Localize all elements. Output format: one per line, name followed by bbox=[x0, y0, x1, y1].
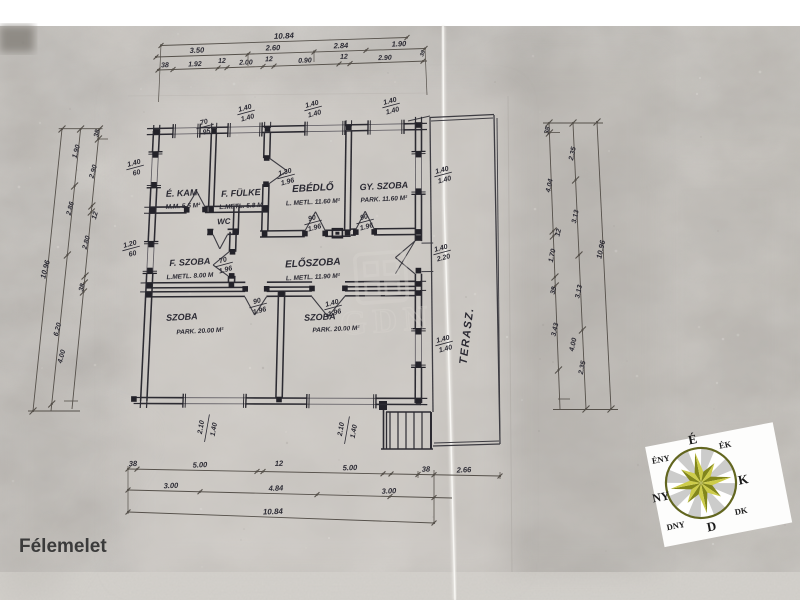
svg-text:SZOBA: SZOBA bbox=[166, 311, 198, 323]
svg-text:3.50: 3.50 bbox=[189, 45, 205, 55]
svg-text:2.90: 2.90 bbox=[377, 55, 392, 63]
svg-text:5.00: 5.00 bbox=[192, 460, 208, 470]
svg-text:É. KAM.: É. KAM. bbox=[166, 187, 200, 199]
svg-text:0.90: 0.90 bbox=[298, 57, 312, 64]
svg-text:1.90: 1.90 bbox=[391, 39, 407, 49]
svg-text:12: 12 bbox=[265, 56, 273, 63]
svg-text:WC: WC bbox=[217, 217, 231, 227]
svg-text:GDN: GDN bbox=[339, 299, 435, 342]
svg-text:3.00: 3.00 bbox=[381, 486, 397, 496]
svg-text:38: 38 bbox=[129, 459, 138, 468]
svg-text:4.84: 4.84 bbox=[267, 483, 284, 493]
svg-text:5.00: 5.00 bbox=[342, 463, 358, 473]
svg-text:38: 38 bbox=[161, 62, 169, 69]
svg-text:3.00: 3.00 bbox=[163, 481, 179, 491]
svg-text:10.84: 10.84 bbox=[263, 507, 284, 517]
svg-text:12: 12 bbox=[218, 58, 226, 65]
svg-text:2.00: 2.00 bbox=[238, 59, 253, 67]
svg-text:12: 12 bbox=[275, 459, 284, 468]
svg-text:2.60: 2.60 bbox=[264, 43, 281, 53]
svg-text:Félemelet: Félemelet bbox=[19, 536, 107, 557]
svg-text:12: 12 bbox=[340, 54, 348, 61]
svg-text:2.66: 2.66 bbox=[455, 465, 472, 475]
svg-text:F. FÜLKE: F. FÜLKE bbox=[221, 187, 262, 199]
svg-text:1.92: 1.92 bbox=[188, 61, 202, 68]
svg-text:2.84: 2.84 bbox=[332, 41, 349, 51]
svg-text:38: 38 bbox=[422, 464, 431, 473]
svg-text:10.84: 10.84 bbox=[274, 31, 295, 41]
